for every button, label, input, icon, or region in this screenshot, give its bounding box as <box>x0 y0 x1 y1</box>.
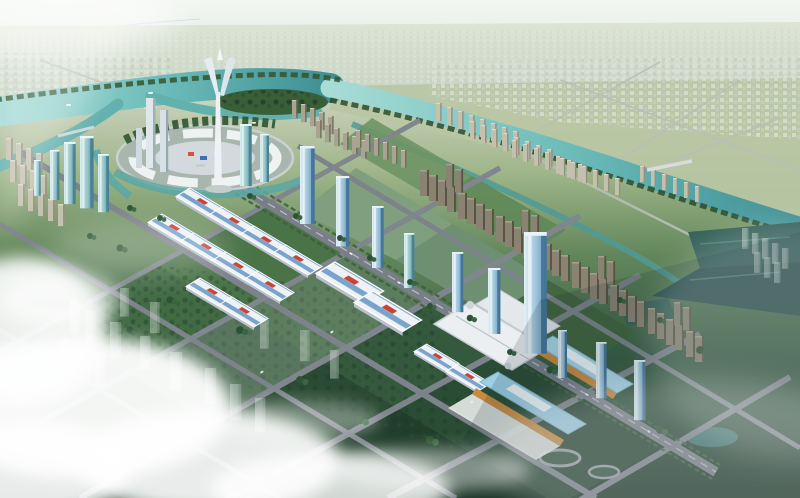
residential-tower <box>552 250 561 276</box>
residential-tower <box>523 144 528 162</box>
residential-tower <box>365 134 370 152</box>
residential-tower <box>356 130 361 148</box>
residential-tower <box>292 100 298 118</box>
residential-tower <box>301 104 307 122</box>
residential-tower <box>38 194 45 216</box>
tower-shade <box>166 110 168 172</box>
residential-tower <box>593 170 598 187</box>
residential-tower <box>48 199 55 221</box>
residential-tower <box>514 227 523 253</box>
residential-tower <box>505 221 514 247</box>
residential-tower <box>571 162 576 179</box>
spire-podium <box>205 185 233 193</box>
boat <box>148 92 153 94</box>
residential-tower <box>343 132 349 150</box>
residential-tower <box>429 175 438 201</box>
residential-tower <box>458 193 467 219</box>
pavilion <box>188 152 194 156</box>
boat <box>252 122 256 124</box>
residential-tower <box>640 166 645 182</box>
future-phase-tower <box>300 330 310 361</box>
residential-tower <box>695 186 700 202</box>
residential-tower <box>325 124 331 142</box>
residential-tower <box>374 138 379 156</box>
residential-tower <box>545 152 550 170</box>
residential-tower <box>572 262 581 288</box>
residential-tower <box>598 256 606 279</box>
residential-tower <box>604 174 609 191</box>
cloud <box>0 270 120 330</box>
residential-tower <box>476 204 485 230</box>
residential-tower <box>534 148 539 166</box>
residential-tower <box>560 158 565 175</box>
residential-tower <box>512 140 517 158</box>
masterplan-scene <box>0 0 800 498</box>
residential-tower <box>615 178 620 195</box>
residential-tower <box>458 111 464 129</box>
residential-tower <box>420 170 429 196</box>
glass-office-tower <box>300 146 315 224</box>
residential-tower <box>492 129 498 147</box>
glass-office-tower <box>452 252 463 312</box>
residential-tower <box>662 174 667 190</box>
residential-tower <box>310 108 316 126</box>
podium-tower <box>136 128 142 168</box>
residential-tower <box>485 209 494 235</box>
residential-tower <box>316 120 322 138</box>
river-island-canopy <box>222 90 322 110</box>
residential-tower <box>467 198 476 224</box>
residential-tower <box>496 216 505 242</box>
residential-tower <box>481 125 487 143</box>
glass-tower <box>80 136 94 208</box>
residential-tower <box>673 178 678 194</box>
glass-tower <box>260 134 269 182</box>
glass-office-tower <box>488 268 500 334</box>
residential-tower <box>446 164 454 187</box>
mist-wisp <box>220 400 380 440</box>
residential-tower <box>392 146 397 164</box>
residential-tower <box>383 142 388 160</box>
residential-tower <box>651 170 656 186</box>
residential-tower <box>455 169 463 192</box>
residential-tower <box>503 133 509 151</box>
residential-tower <box>40 175 47 197</box>
mist-wisp <box>50 224 230 276</box>
residential-tower <box>582 166 587 183</box>
residential-tower <box>561 255 570 281</box>
glass-tower <box>98 154 109 212</box>
aerial-rendering <box>0 0 800 498</box>
residential-tower <box>436 103 442 121</box>
pavilion <box>200 156 207 160</box>
future-phase-tower <box>120 288 129 317</box>
residential-tower <box>58 204 65 226</box>
residential-tower <box>684 182 689 198</box>
residential-tower <box>401 150 406 168</box>
future-phase-tower <box>260 320 269 349</box>
future-phase-tower <box>330 350 339 379</box>
residential-tower <box>438 180 447 206</box>
residential-tower <box>470 121 476 139</box>
residential-tower <box>522 210 530 233</box>
pavilion <box>196 164 205 167</box>
residential-tower <box>447 186 456 212</box>
glass-tower <box>240 124 252 186</box>
residential-tower <box>334 128 340 146</box>
tower-shade <box>153 98 156 168</box>
glass-tower <box>64 142 76 204</box>
future-phase-tower <box>150 302 160 333</box>
mall-dome <box>466 301 474 309</box>
residential-tower <box>447 107 453 125</box>
